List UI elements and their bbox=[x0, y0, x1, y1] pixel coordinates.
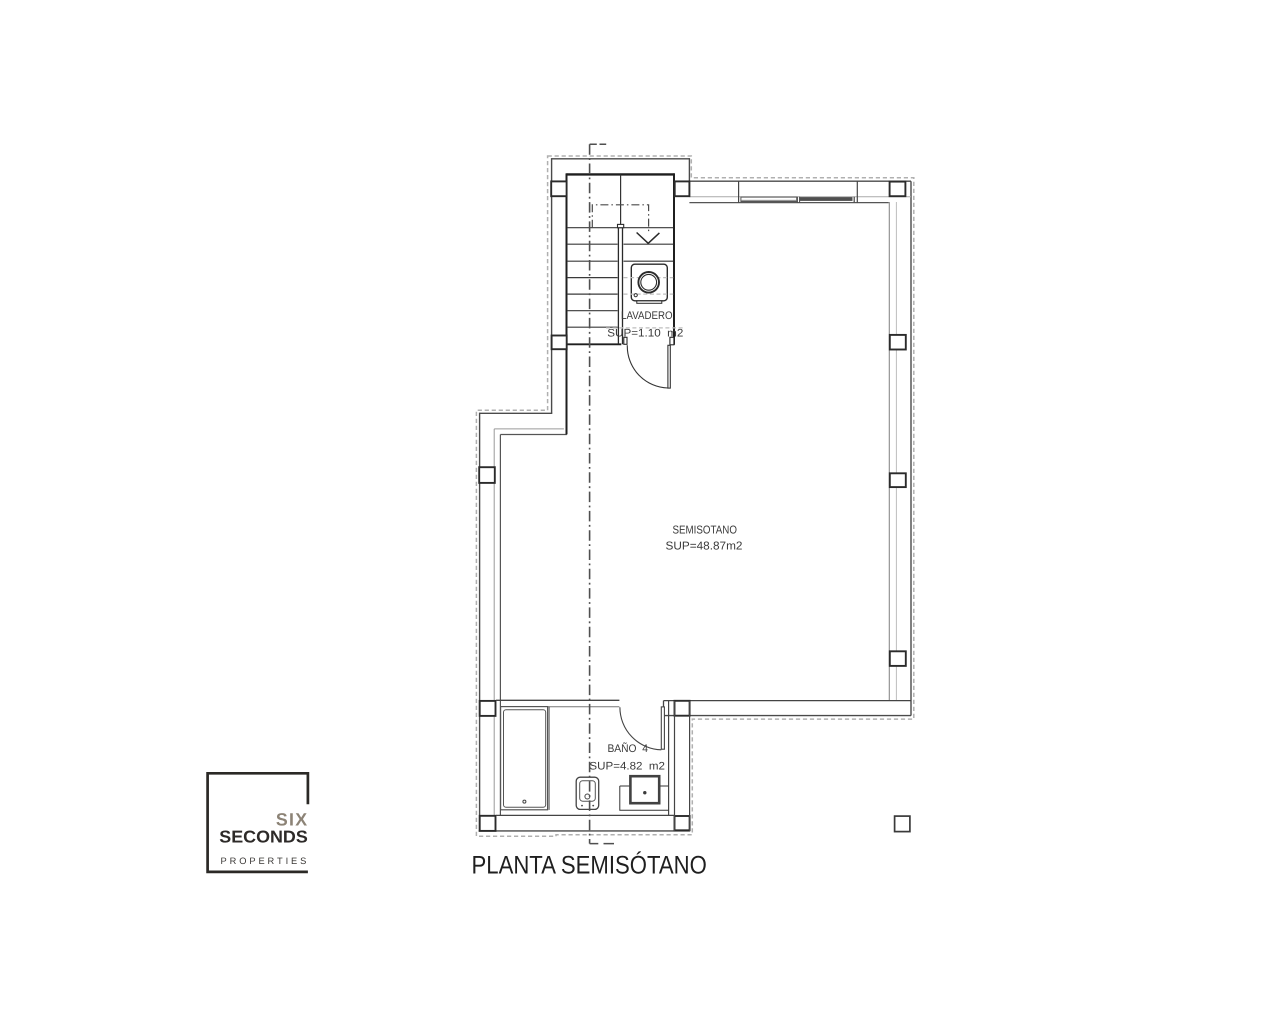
svg-text:SECONDS: SECONDS bbox=[219, 827, 307, 847]
svg-text:SEMISOTANO: SEMISOTANO bbox=[672, 524, 737, 536]
svg-text:PLANTA SEMISÓTANO: PLANTA SEMISÓTANO bbox=[472, 851, 707, 880]
svg-text:PROPERTIES: PROPERTIES bbox=[221, 856, 310, 866]
svg-text:SUP=48.87m2: SUP=48.87m2 bbox=[666, 541, 743, 553]
svg-text:SUP=4.82 m2: SUP=4.82 m2 bbox=[589, 761, 665, 773]
svg-text:LAVADERO: LAVADERO bbox=[621, 310, 673, 322]
svg-text:BAÑO 4: BAÑO 4 bbox=[607, 742, 648, 755]
